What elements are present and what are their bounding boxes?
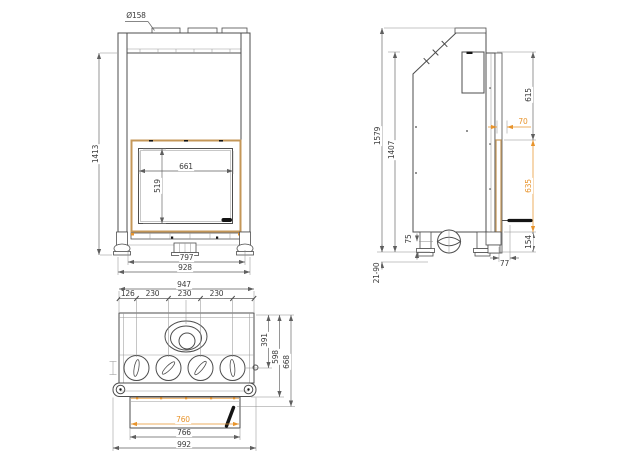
dim-front-base-width: 797 <box>179 254 195 262</box>
top-front-frame <box>113 383 256 397</box>
front-grille <box>131 233 241 239</box>
dim-side-foot-height: 75 <box>405 233 413 244</box>
dim-side-leveling-range: 21-90 <box>373 262 381 285</box>
dim-top-outlet-pitch-1: 230 <box>145 290 161 298</box>
dim-top-outlet-offset: 126 <box>120 290 136 298</box>
front-view-linework <box>99 22 254 276</box>
dim-front-overall-width: 928 <box>177 264 193 272</box>
dim-side-overall-height: 1579 <box>374 126 382 146</box>
dim-front-glass-width: 661 <box>178 163 194 171</box>
top-view-linework <box>110 289 296 451</box>
front-door-frame <box>132 141 241 232</box>
dim-front-flue-diameter: Ø158 <box>125 12 146 20</box>
side-shield-box <box>462 52 484 93</box>
drawing-linework <box>0 0 624 460</box>
front-door-handle <box>222 218 233 222</box>
dim-side-base-section: 154 <box>525 234 533 250</box>
front-left-column <box>118 33 127 232</box>
dim-top-frame-width: 992 <box>176 441 192 449</box>
dim-side-frame-depth: 70 <box>517 118 528 126</box>
dim-top-body-width: 947 <box>176 281 192 289</box>
dim-top-body-depth: 598 <box>272 349 280 365</box>
dim-top-outlet-pitch-3: 230 <box>209 290 225 298</box>
dim-top-door-width: 766 <box>176 429 192 437</box>
dim-side-body-height: 1407 <box>388 140 396 160</box>
dim-side-glass-section: 635 <box>525 178 533 194</box>
dim-front-glass-height: 519 <box>154 178 162 194</box>
dim-top-glass-opening-width: 760 <box>175 416 191 424</box>
front-right-column <box>241 33 250 232</box>
dim-top-outlet-pitch-2: 230 <box>177 290 193 298</box>
front-top-stub <box>152 28 180 33</box>
technical-drawing-canvas: Ø158 1413 661 519 797 928 1579 1407 615 … <box>0 0 624 460</box>
dim-side-base-offset: 77 <box>499 260 510 268</box>
dim-front-overall-height: 1413 <box>92 144 100 164</box>
dim-top-overall-depth: 668 <box>283 354 291 370</box>
side-view-linework <box>377 28 536 270</box>
dim-top-flue-center-depth: 391 <box>261 332 269 348</box>
dim-side-upper-section: 615 <box>525 87 533 103</box>
